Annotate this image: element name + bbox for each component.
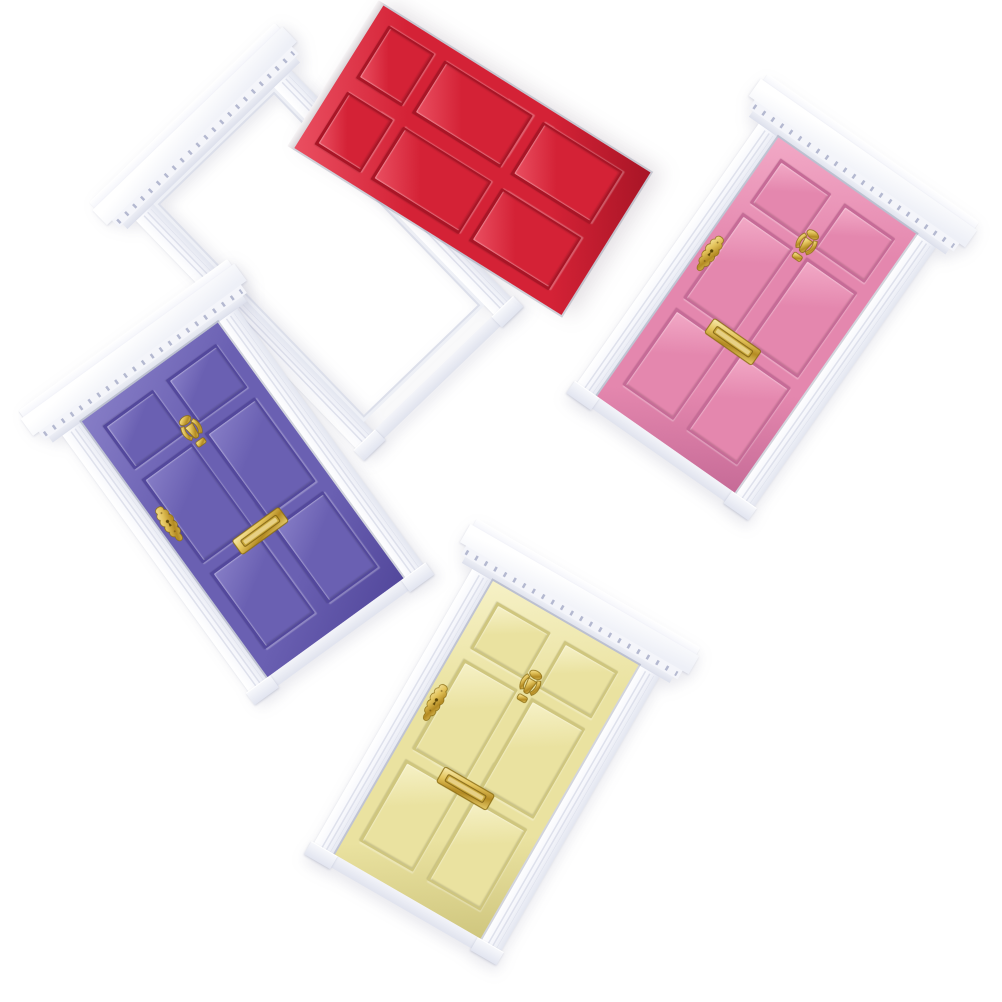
pink-door-assembly xyxy=(550,72,981,531)
door-panel xyxy=(538,641,619,719)
door-panel xyxy=(470,602,551,680)
product-photo-canvas xyxy=(0,0,1002,1002)
